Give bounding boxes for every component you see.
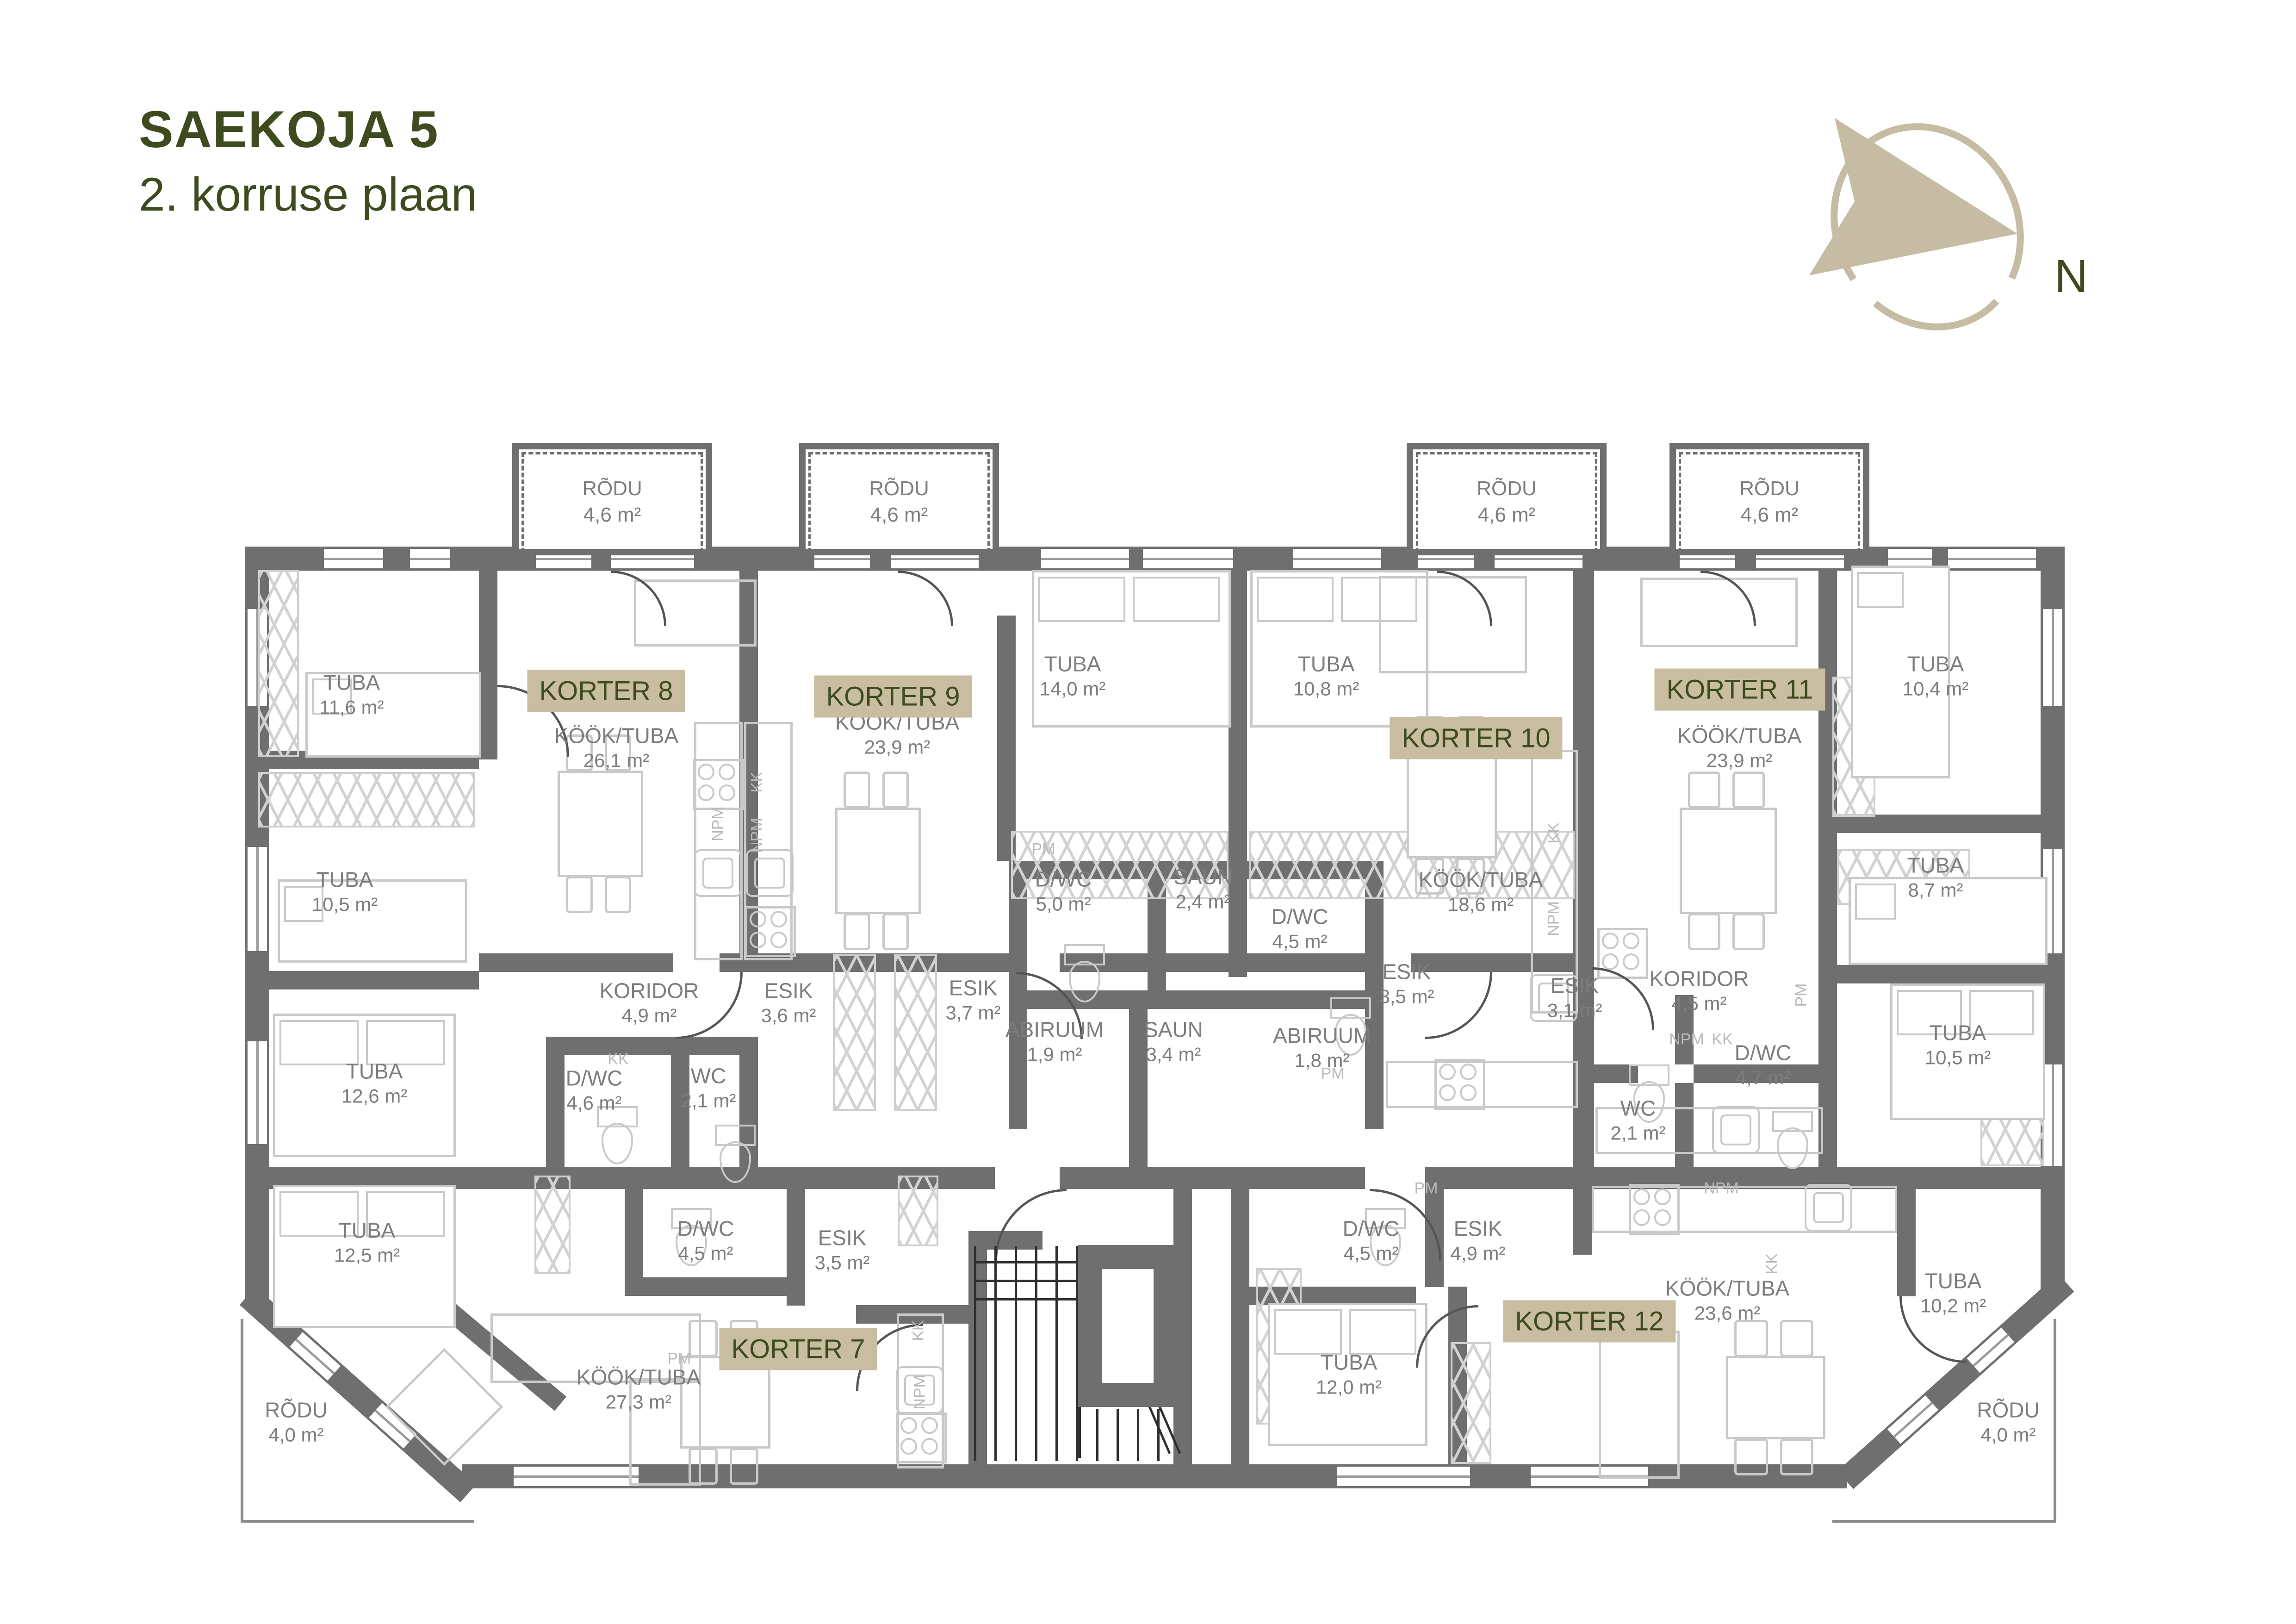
furniture-chair bbox=[1734, 1438, 1768, 1475]
room-name: ESIK bbox=[1547, 972, 1602, 998]
room-label: D/WC4,5 m² bbox=[677, 1215, 734, 1265]
room-label: ESIK3,6 m² bbox=[761, 977, 816, 1027]
stove-burner bbox=[1439, 1084, 1456, 1101]
wall bbox=[245, 971, 479, 989]
window bbox=[1948, 549, 2036, 568]
north-arrow-icon bbox=[1795, 93, 2073, 352]
stove-burner bbox=[921, 1438, 938, 1455]
hatch-wardrobe bbox=[258, 570, 299, 757]
furniture-pillow bbox=[1857, 572, 1904, 608]
stove-burner bbox=[900, 1417, 917, 1434]
room-label: D/WC4,7 m² bbox=[1735, 1039, 1792, 1089]
window bbox=[2043, 609, 2062, 706]
stove-burner bbox=[1460, 1084, 1477, 1101]
balcony-railing bbox=[1832, 1520, 2056, 1523]
furniture-sink bbox=[1805, 1184, 1852, 1232]
appliance-label: PM bbox=[1032, 840, 1055, 859]
balcony: RÕDU4,6 m² bbox=[1669, 443, 1869, 555]
room-name: D/WC bbox=[566, 1065, 623, 1091]
furniture-chair bbox=[730, 1448, 759, 1485]
furniture-table bbox=[1726, 1356, 1825, 1439]
room-name: TUBA bbox=[334, 1217, 400, 1243]
toilet-bowl bbox=[602, 1123, 633, 1164]
toilet-bowl bbox=[1069, 961, 1101, 1002]
room-area: 4,9 m² bbox=[1450, 1241, 1505, 1265]
appliance-label: KK bbox=[910, 1320, 928, 1341]
wall bbox=[546, 1037, 758, 1055]
balcony-label: RÕDU4,6 m² bbox=[519, 475, 706, 528]
furniture-chair bbox=[1732, 913, 1765, 950]
hatch-wardrobe bbox=[898, 1176, 938, 1246]
balcony-railing bbox=[2054, 1319, 2056, 1523]
page-title: SAEKOJA 5 2. korruse plaan bbox=[139, 100, 477, 222]
window-pane bbox=[324, 558, 383, 560]
room-area: 1,9 m² bbox=[1005, 1042, 1104, 1066]
room-name: D/WC bbox=[1035, 866, 1092, 892]
balcony-label: RÕDU4,0 m² bbox=[265, 1397, 327, 1446]
balcony-area: 4,6 m² bbox=[1676, 502, 1863, 528]
window bbox=[1143, 549, 1233, 568]
appliance-label: NPM bbox=[748, 818, 766, 853]
room-label: D/WC5,0 m² bbox=[1035, 866, 1092, 915]
window bbox=[1887, 1395, 1938, 1444]
room-name: KÖÖK/TUBA bbox=[1665, 1275, 1789, 1301]
window-pane bbox=[814, 558, 870, 560]
room-name: WC bbox=[681, 1063, 736, 1089]
room-area: 11,6 m² bbox=[319, 695, 384, 719]
room-name: KORIDOR bbox=[600, 977, 699, 1003]
room-label: KÖÖK/TUBA26,1 m² bbox=[554, 722, 678, 772]
room-name: ESIK bbox=[761, 977, 816, 1003]
toilet-bowl bbox=[720, 1141, 751, 1183]
wall bbox=[1837, 815, 2065, 833]
furniture-table bbox=[1680, 808, 1777, 914]
room-label: ABIRUUM1,9 m² bbox=[1005, 1016, 1104, 1066]
appliance-label: PM bbox=[668, 1350, 691, 1368]
apartment-label: KORTER 9 bbox=[814, 676, 972, 718]
window-pane bbox=[536, 558, 591, 560]
window bbox=[410, 549, 450, 568]
room-label: WC2,1 m² bbox=[1610, 1095, 1665, 1145]
room-area: 10,4 m² bbox=[1903, 677, 1968, 700]
room-label: TUBA14,0 m² bbox=[1040, 651, 1105, 700]
window-pane bbox=[2052, 1064, 2054, 1166]
plan: SAEKOJA 5 2. korruse plaan N RÕDU4,6 m²R… bbox=[0, 0, 2296, 1624]
window-pane bbox=[2052, 849, 2054, 953]
room-name: D/WC bbox=[1343, 1215, 1400, 1241]
window bbox=[1041, 549, 1129, 568]
window-pane bbox=[1948, 558, 2036, 560]
room-area: 3,6 m² bbox=[761, 1003, 816, 1027]
furniture-pillow bbox=[1274, 1309, 1342, 1355]
room-label: KORIDOR4,5 m² bbox=[1650, 965, 1749, 1015]
wall bbox=[479, 953, 673, 972]
furniture-chair bbox=[1734, 1320, 1768, 1357]
stove-burner bbox=[719, 784, 735, 801]
appliance-label: KK bbox=[608, 1051, 628, 1069]
window-pane bbox=[1293, 558, 1381, 560]
balcony: RÕDU4,6 m² bbox=[1407, 443, 1607, 555]
furniture-toilet bbox=[1064, 944, 1101, 1000]
furniture-chair bbox=[605, 876, 632, 913]
appliance-label: NPM bbox=[1545, 901, 1563, 936]
room-area: 18,6 m² bbox=[1419, 892, 1543, 916]
room-name: ESIK bbox=[814, 1225, 869, 1251]
window-pane bbox=[1337, 1475, 1470, 1478]
room-name: ABIRUUM bbox=[1005, 1016, 1104, 1042]
window-pane bbox=[1893, 1402, 1932, 1437]
room-label: TUBA12,5 m² bbox=[334, 1217, 400, 1267]
window bbox=[1337, 1467, 1470, 1486]
room-area: 27,3 m² bbox=[577, 1390, 701, 1413]
furniture-pillow bbox=[1038, 577, 1125, 622]
window bbox=[2043, 1064, 2062, 1166]
stove-burner bbox=[1633, 1209, 1650, 1226]
furniture-sink bbox=[694, 849, 742, 897]
room-area: 12,0 m² bbox=[1316, 1375, 1382, 1399]
room-label: TUBA10,4 m² bbox=[1903, 651, 1968, 700]
room-label: ESIK3,5 m² bbox=[814, 1225, 869, 1274]
balcony-label: RÕDU4,6 m² bbox=[1413, 475, 1600, 528]
hatch-wardrobe bbox=[894, 954, 937, 1111]
toilet-bowl bbox=[1777, 1127, 1809, 1169]
room-name: TUBA bbox=[341, 1058, 407, 1084]
room-label: TUBA12,0 m² bbox=[1316, 1349, 1382, 1399]
room-name: SAUN bbox=[1144, 1016, 1203, 1042]
room-name: ABIRUUM bbox=[1273, 1022, 1371, 1048]
window-pane bbox=[256, 1041, 259, 1144]
window-pane bbox=[1756, 558, 1844, 560]
room-area: 8,7 m² bbox=[1907, 878, 1964, 902]
stove-burner bbox=[719, 764, 735, 780]
room-label: D/WC4,6 m² bbox=[566, 1065, 623, 1114]
furniture-table bbox=[1407, 752, 1497, 859]
stove-burner bbox=[750, 932, 766, 948]
room-label: ESIK3,7 m² bbox=[945, 975, 1000, 1024]
wall bbox=[1231, 1167, 1249, 1464]
appliance-label: KK bbox=[1763, 1253, 1781, 1274]
room-area: 12,6 m² bbox=[341, 1084, 407, 1108]
room-name: ESIK bbox=[1379, 958, 1434, 984]
room-area: 4,7 m² bbox=[1735, 1065, 1792, 1089]
furniture-pillow bbox=[1257, 577, 1334, 622]
stove-burner bbox=[1654, 1209, 1671, 1226]
appliance-label: NPM bbox=[1704, 1180, 1739, 1198]
room-label: WC2,1 m² bbox=[681, 1063, 736, 1112]
page-title-line2: 2. korruse plaan bbox=[139, 168, 477, 222]
balcony-label: RÕDU4,6 m² bbox=[806, 475, 993, 528]
apartment-label: KORTER 8 bbox=[527, 670, 685, 712]
furniture-chair bbox=[1732, 772, 1765, 809]
window-pane bbox=[1143, 558, 1233, 560]
balcony-railing bbox=[241, 1319, 243, 1523]
room-name: ESIK bbox=[1450, 1215, 1505, 1241]
room-name: TUBA bbox=[1903, 651, 1968, 677]
room-area: 3,5 m² bbox=[814, 1251, 869, 1274]
room-label: D/WC4,5 m² bbox=[1343, 1215, 1400, 1265]
furniture-chair bbox=[882, 913, 909, 950]
balcony: RÕDU4,6 m² bbox=[799, 443, 999, 555]
furniture-chair bbox=[844, 772, 870, 809]
wall bbox=[479, 547, 497, 759]
room-name: TUBA bbox=[1040, 651, 1105, 677]
apartment-label: KORTER 7 bbox=[719, 1328, 877, 1370]
window-pane bbox=[410, 558, 450, 560]
appliance-label: PM bbox=[1415, 1180, 1438, 1198]
window bbox=[514, 1467, 639, 1486]
furniture-sink bbox=[746, 849, 794, 897]
door-arc bbox=[898, 571, 953, 626]
apartment-label: KORTER 11 bbox=[1655, 669, 1825, 711]
room-name: TUBA bbox=[319, 669, 384, 695]
room-label: TUBA12,6 m² bbox=[341, 1058, 407, 1108]
room-area: 10,5 m² bbox=[1925, 1045, 1991, 1069]
appliance-label: PM bbox=[1321, 1065, 1345, 1083]
room-label: ESIK3,1 m² bbox=[1547, 972, 1602, 1022]
balcony-area: 4,6 m² bbox=[1413, 502, 1600, 528]
appliance-label: KK bbox=[1545, 822, 1563, 843]
balcony-area: 4,0 m² bbox=[1977, 1423, 2039, 1446]
appliance-label: KK bbox=[748, 772, 766, 792]
stove-burner bbox=[1623, 933, 1639, 949]
furniture-chair bbox=[1688, 772, 1720, 809]
stove-burner bbox=[1623, 953, 1639, 970]
stove-burner bbox=[770, 911, 787, 927]
wall bbox=[1573, 1167, 1592, 1255]
window-pane bbox=[514, 1475, 639, 1478]
room-label: KÖÖK/TUBA27,3 m² bbox=[577, 1364, 701, 1413]
room-area: 10,8 m² bbox=[1293, 677, 1359, 700]
north-label: N bbox=[2054, 250, 2088, 303]
window-pane bbox=[1680, 558, 1735, 560]
room-label: TUBA10,8 m² bbox=[1293, 651, 1359, 700]
room-area: 2,4 m² bbox=[1173, 890, 1233, 913]
furniture-sofa bbox=[1599, 1331, 1680, 1479]
stove-burner bbox=[1633, 1188, 1650, 1205]
furniture-chair bbox=[1780, 1320, 1814, 1357]
room-area: 2,1 m² bbox=[1610, 1121, 1665, 1145]
room-area: 3,5 m² bbox=[1379, 984, 1434, 1008]
stairs-landing bbox=[974, 1246, 1078, 1300]
wall bbox=[1837, 965, 2065, 983]
room-area: 10,2 m² bbox=[1920, 1294, 1986, 1317]
furniture-toilet bbox=[715, 1125, 752, 1180]
window bbox=[1967, 1327, 2015, 1373]
wall bbox=[625, 1167, 643, 1278]
wall bbox=[997, 616, 1016, 861]
stove-burner bbox=[698, 784, 714, 801]
window bbox=[248, 847, 267, 951]
room-area: 4,5 m² bbox=[1650, 991, 1749, 1015]
room-name: TUBA bbox=[1907, 852, 1964, 878]
room-label: KÖÖK/TUBA23,9 m² bbox=[1677, 722, 1801, 772]
window-pane bbox=[1888, 558, 1932, 560]
room-label: KÖÖK/TUBA18,6 m² bbox=[1419, 866, 1543, 916]
hatch-wardrobe bbox=[833, 954, 876, 1111]
furniture-chair bbox=[882, 772, 909, 809]
appliance-label: NPM bbox=[911, 1375, 929, 1410]
furniture-chair bbox=[1688, 913, 1720, 950]
room-area: 3,7 m² bbox=[945, 1001, 1000, 1024]
elevator-car bbox=[1102, 1269, 1154, 1383]
room-name: KÖÖK/TUBA bbox=[1419, 866, 1543, 892]
wall bbox=[1573, 1064, 1638, 1083]
room-name: WC bbox=[1610, 1095, 1665, 1121]
room-area: 14,0 m² bbox=[1040, 677, 1105, 700]
stove-burner bbox=[921, 1417, 938, 1434]
stairs bbox=[974, 1409, 1173, 1461]
balcony-label: RÕDU4,0 m² bbox=[1977, 1397, 2039, 1446]
hatch-wardrobe bbox=[534, 1176, 571, 1274]
room-label: SAUN3,4 m² bbox=[1144, 1016, 1203, 1066]
room-area: 2,1 m² bbox=[681, 1089, 736, 1112]
room-name: KORIDOR bbox=[1650, 965, 1749, 991]
furniture-chair bbox=[1780, 1438, 1814, 1475]
apartment-label: KORTER 12 bbox=[1503, 1300, 1675, 1343]
stove-burner bbox=[698, 764, 714, 780]
stove-burner bbox=[770, 932, 787, 948]
window-pane bbox=[611, 558, 694, 560]
room-area: 12,5 m² bbox=[334, 1243, 400, 1267]
room-name: KÖÖK/TUBA bbox=[1677, 722, 1801, 748]
balcony: RÕDU4,6 m² bbox=[512, 443, 712, 555]
balcony-label: RÕDU4,6 m² bbox=[1676, 475, 1863, 528]
room-area: 4,9 m² bbox=[600, 1003, 699, 1027]
appliance-label: NPM bbox=[1669, 1031, 1704, 1049]
furniture-chair bbox=[566, 876, 593, 913]
room-area: 4,6 m² bbox=[566, 1091, 623, 1114]
balcony-area: 4,6 m² bbox=[519, 502, 706, 528]
furniture-table bbox=[835, 808, 921, 914]
window-pane bbox=[256, 847, 259, 951]
appliance-label: PM bbox=[1793, 983, 1811, 1007]
room-name: TUBA bbox=[1293, 651, 1359, 677]
room-name: KÖÖK/TUBA bbox=[554, 722, 678, 748]
window-pane bbox=[1041, 558, 1129, 560]
room-label: KÖÖK/TUBA23,6 m² bbox=[1665, 1275, 1789, 1325]
room-area: 4,5 m² bbox=[1343, 1241, 1400, 1265]
stove-burner bbox=[1602, 953, 1619, 970]
furniture-pillow bbox=[1133, 577, 1220, 622]
room-area: 23,6 m² bbox=[1665, 1301, 1789, 1325]
room-name: TUBA bbox=[1925, 1020, 1991, 1045]
room-name: TUBA bbox=[1316, 1349, 1382, 1375]
furniture-chair bbox=[844, 913, 870, 950]
balcony-area: 4,6 m² bbox=[806, 502, 993, 528]
furniture-pillow bbox=[1855, 884, 1896, 920]
stove-burner bbox=[900, 1438, 917, 1455]
furniture-toilet bbox=[1772, 1111, 1809, 1166]
balcony-name: RÕDU bbox=[1977, 1397, 2039, 1423]
balcony-name: RÕDU bbox=[519, 475, 706, 502]
room-label: ESIK4,9 m² bbox=[1450, 1215, 1505, 1265]
page-title-line1: SAEKOJA 5 bbox=[139, 100, 477, 159]
stove-burner bbox=[750, 911, 766, 927]
room-area: 23,9 m² bbox=[835, 735, 959, 759]
room-name: ESIK bbox=[945, 975, 1000, 1001]
window-pane bbox=[1973, 1334, 2009, 1366]
window-pane bbox=[1418, 558, 1474, 560]
window-pane bbox=[2052, 609, 2054, 706]
room-area: 3,4 m² bbox=[1144, 1042, 1203, 1066]
room-area: 4,5 m² bbox=[677, 1241, 734, 1265]
hatch-wardrobe bbox=[258, 772, 475, 828]
balcony-name: RÕDU bbox=[806, 475, 993, 502]
furniture-table bbox=[558, 771, 643, 877]
wall bbox=[1249, 953, 1365, 972]
wall bbox=[1818, 547, 1837, 1169]
apartment-label: KORTER 10 bbox=[1390, 717, 1562, 759]
room-label: TUBA8,7 m² bbox=[1907, 852, 1964, 902]
furniture-pillow bbox=[1349, 1309, 1417, 1355]
room-area: 26,1 m² bbox=[554, 748, 678, 772]
room-label: TUBA11,6 m² bbox=[319, 669, 384, 719]
balcony-name: RÕDU bbox=[1413, 475, 1600, 502]
wall bbox=[546, 1055, 565, 1167]
room-area: 4,5 m² bbox=[1272, 929, 1328, 953]
room-label: ESIK3,5 m² bbox=[1379, 958, 1434, 1008]
room-name: TUBA bbox=[312, 866, 378, 892]
room-label: KORIDOR4,9 m² bbox=[600, 977, 699, 1027]
room-name: TUBA bbox=[1920, 1268, 1986, 1294]
room-label: TUBA10,5 m² bbox=[1925, 1020, 1991, 1069]
room-label: TUBA10,2 m² bbox=[1920, 1268, 1986, 1317]
room-area: 5,0 m² bbox=[1035, 892, 1092, 915]
window bbox=[248, 1041, 267, 1144]
furniture-sink bbox=[1712, 1106, 1760, 1154]
window-pane bbox=[891, 558, 979, 560]
balcony-name: RÕDU bbox=[265, 1397, 327, 1423]
window bbox=[290, 1332, 341, 1381]
room-name: D/WC bbox=[1735, 1039, 1792, 1065]
window bbox=[1293, 549, 1381, 568]
room-name: D/WC bbox=[677, 1215, 734, 1241]
balcony-name: RÕDU bbox=[1676, 475, 1863, 502]
window bbox=[324, 549, 383, 568]
stove-burner bbox=[1602, 933, 1619, 949]
window-pane bbox=[1495, 558, 1582, 560]
wall bbox=[1897, 1167, 1916, 1296]
room-name: SAUN bbox=[1173, 864, 1233, 890]
room-label: SAUN2,4 m² bbox=[1173, 864, 1233, 913]
wall bbox=[625, 1277, 805, 1296]
appliance-label: NPM bbox=[709, 806, 727, 841]
stove-burner bbox=[1654, 1188, 1671, 1205]
appliance-label: KK bbox=[1712, 1031, 1732, 1049]
room-area: 10,5 m² bbox=[312, 892, 378, 916]
wall bbox=[1060, 1167, 1365, 1189]
room-name: D/WC bbox=[1272, 903, 1328, 929]
window-pane bbox=[295, 1338, 335, 1374]
room-label: D/WC4,5 m² bbox=[1272, 903, 1328, 953]
room-label: TUBA10,5 m² bbox=[312, 866, 378, 916]
balcony-area: 4,0 m² bbox=[265, 1423, 327, 1446]
balcony-railing bbox=[241, 1520, 474, 1523]
stove-burner bbox=[1460, 1064, 1477, 1080]
room-area: 23,9 m² bbox=[1677, 748, 1801, 772]
room-name: KÖÖK/TUBA bbox=[577, 1364, 701, 1390]
door-arc bbox=[611, 571, 666, 626]
stove-burner bbox=[1439, 1064, 1456, 1080]
room-area: 3,1 m² bbox=[1547, 998, 1602, 1022]
door-arc bbox=[1425, 972, 1492, 1039]
